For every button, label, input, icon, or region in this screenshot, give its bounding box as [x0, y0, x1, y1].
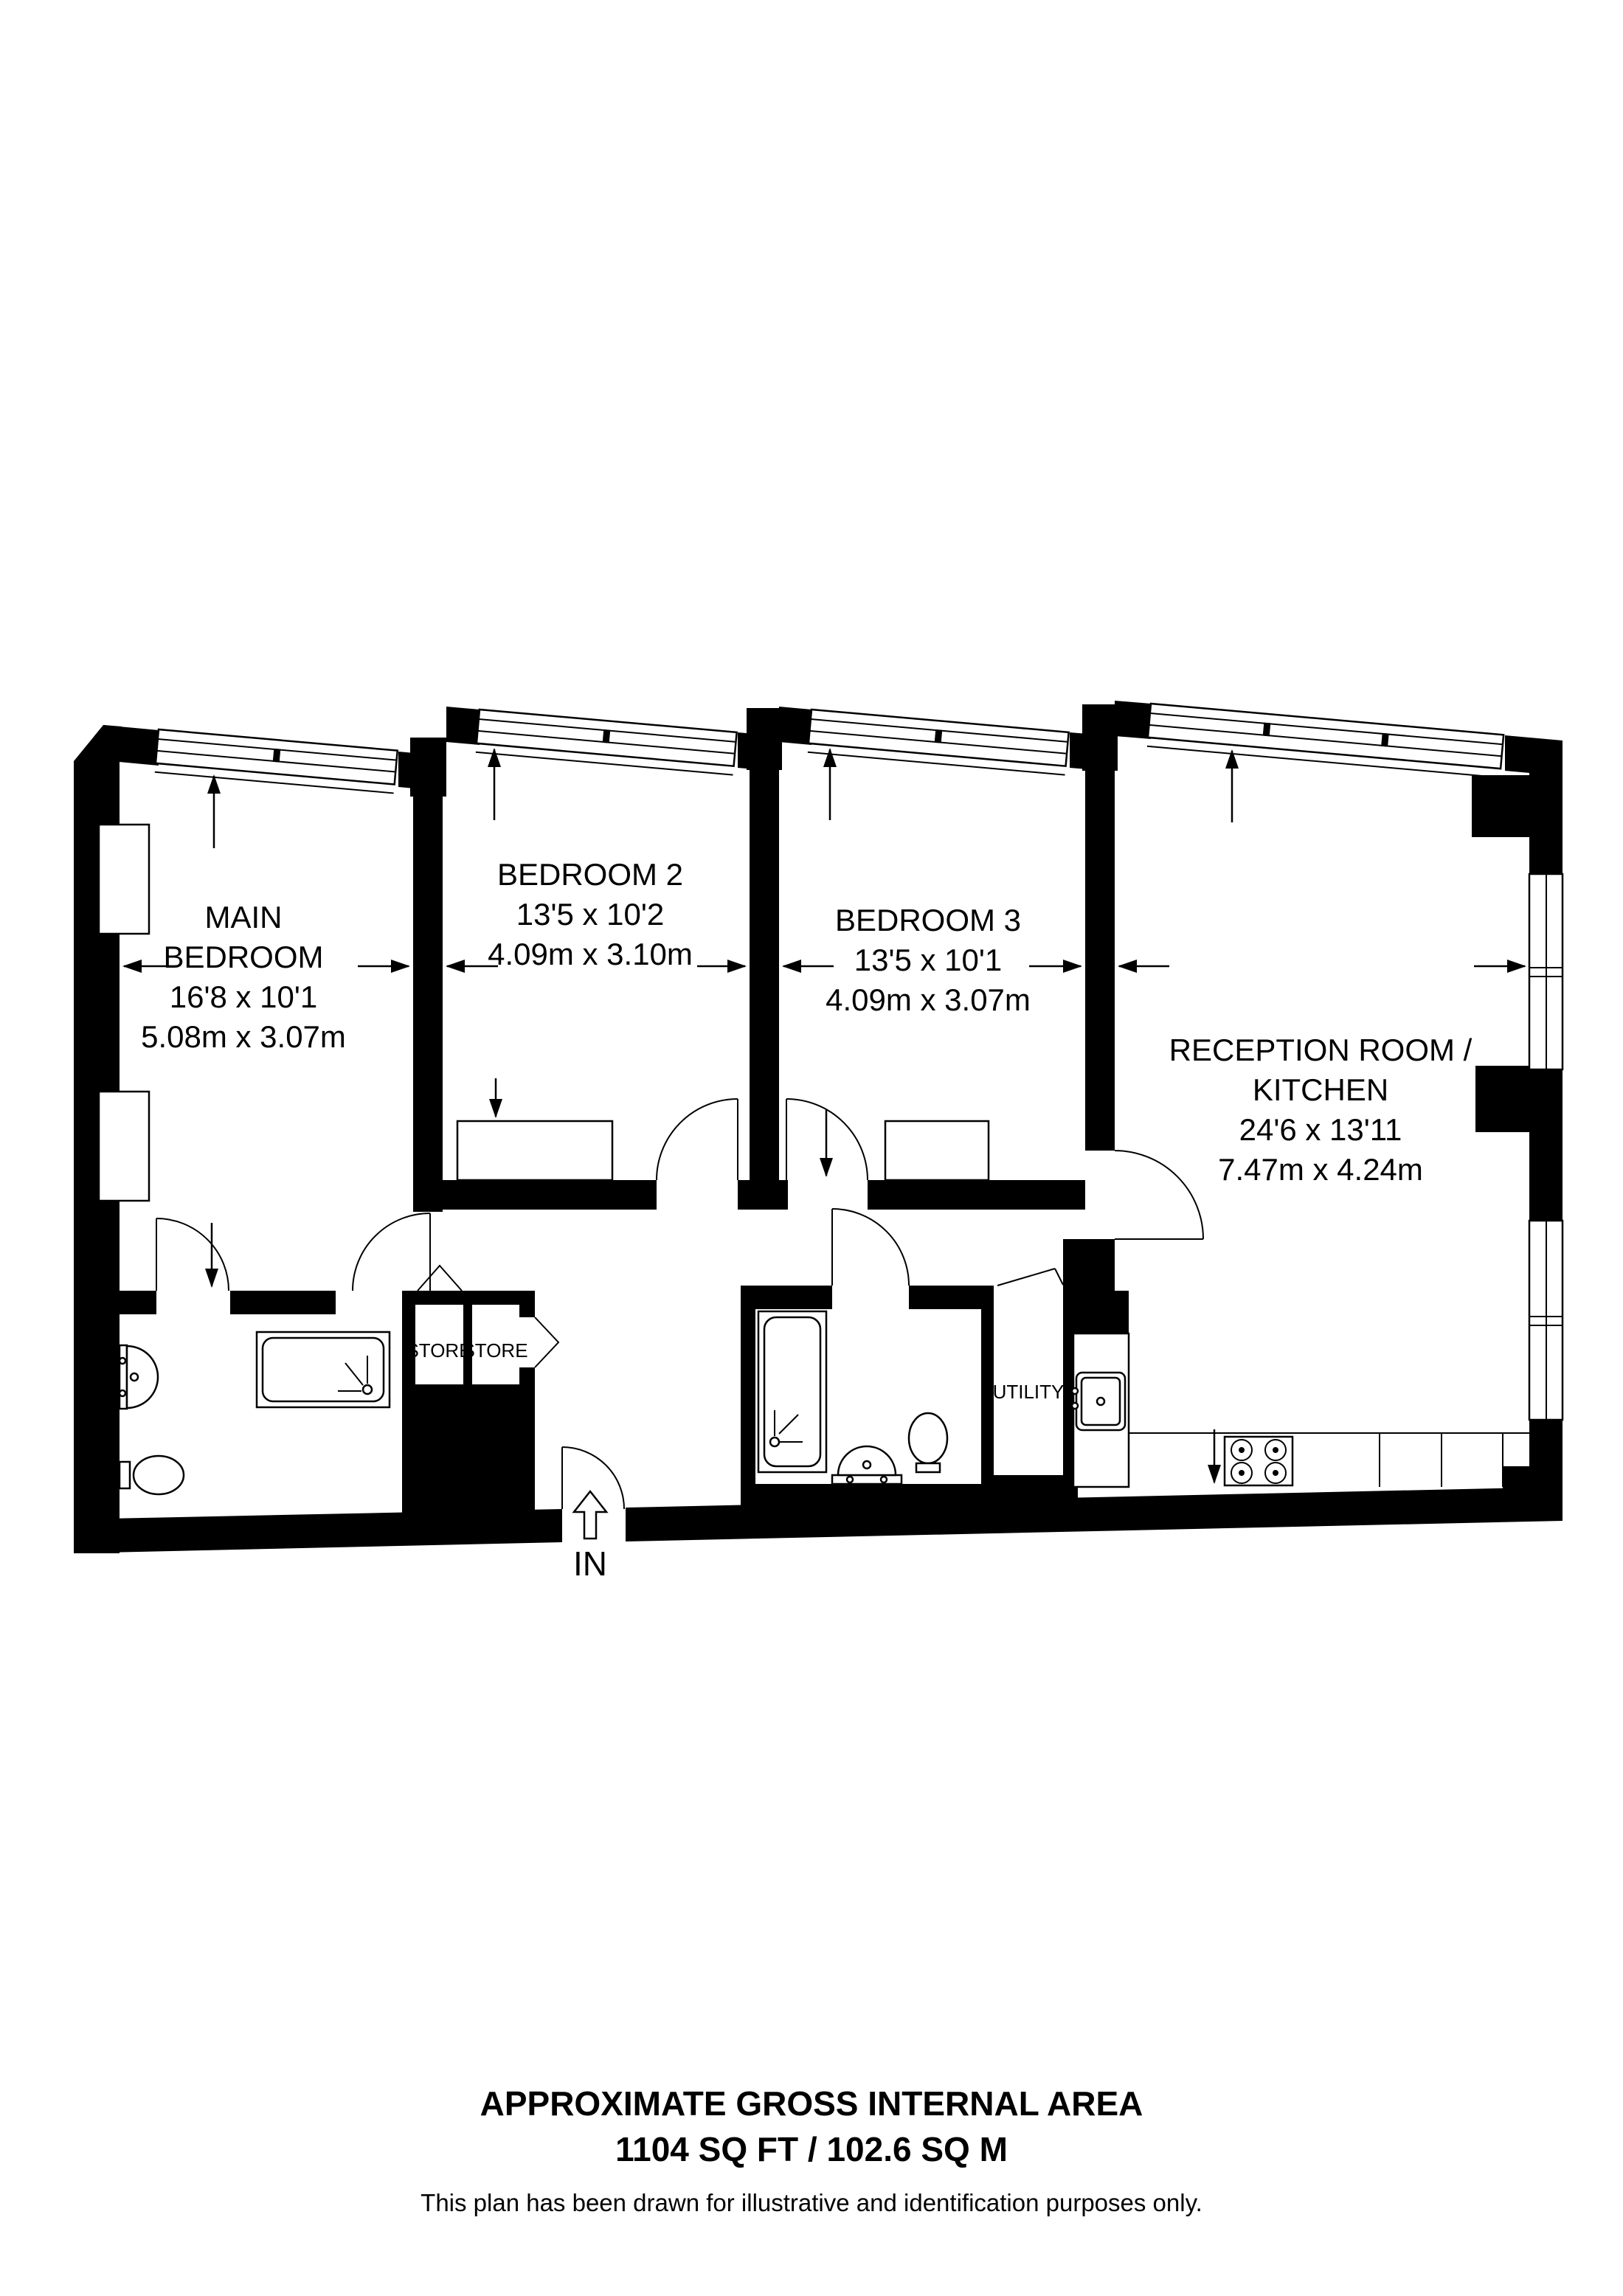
- store2-label: STORE: [462, 1339, 527, 1362]
- page-background: [0, 0, 1623, 2296]
- room-bedroom3-label: BEDROOM 3 13'5 x 10'1 4.09m x 3.07m: [826, 903, 1031, 1017]
- in-label: IN: [573, 1544, 607, 1583]
- left-wall-recess-2: [99, 1092, 149, 1201]
- toilet-icon: [120, 1456, 184, 1494]
- bedroom3-metric-dims: 4.09m x 3.07m: [826, 982, 1031, 1017]
- footer-area-title: APPROXIMATE GROSS INTERNAL AREA: [480, 2084, 1143, 2123]
- bedroom2-metric-dims: 4.09m x 3.10m: [488, 937, 693, 971]
- bath-icon: [257, 1332, 390, 1407]
- bedroom2-wardrobe-niche: [457, 1121, 612, 1180]
- bedroom2-name: BEDROOM 2: [497, 857, 683, 892]
- bedroom3-wardrobe-niche: [885, 1121, 989, 1180]
- main-bedroom-imperial-dims: 16'8 x 10'1: [170, 979, 318, 1014]
- footer-disclaimer: This plan has been drawn for illustrativ…: [421, 2189, 1202, 2216]
- bedroom2-imperial-dims: 13'5 x 10'2: [516, 897, 665, 932]
- reception-imperial-dims: 24'6 x 13'11: [1239, 1112, 1402, 1147]
- kitchen-sink-icon: [1072, 1373, 1125, 1430]
- reception-name-line1: RECEPTION ROOM /: [1169, 1033, 1473, 1067]
- room-bedroom2-label: BEDROOM 2 13'5 x 10'2 4.09m x 3.10m: [488, 857, 693, 971]
- left-wall-recess-1: [99, 825, 149, 934]
- bath-icon: [758, 1311, 826, 1472]
- reception-name-line2: KITCHEN: [1253, 1072, 1388, 1107]
- bedroom3-imperial-dims: 13'5 x 10'1: [854, 943, 1003, 977]
- bedroom3-name: BEDROOM 3: [835, 903, 1021, 937]
- reception-metric-dims: 7.47m x 4.24m: [1218, 1152, 1423, 1187]
- floor-plan-svg: MAIN BEDROOM 16'8 x 10'1 5.08m x 3.07m B…: [0, 0, 1623, 2296]
- main-bedroom-metric-dims: 5.08m x 3.07m: [141, 1019, 346, 1054]
- main-bedroom-name-line2: BEDROOM: [163, 940, 323, 974]
- footer-area-value: 1104 SQ FT / 102.6 SQ M: [615, 2130, 1008, 2168]
- hob-icon: [1225, 1437, 1292, 1485]
- main-bedroom-name-line1: MAIN: [205, 900, 283, 934]
- window-icon: [1529, 1221, 1563, 1420]
- floorplan-page: MAIN BEDROOM 16'8 x 10'1 5.08m x 3.07m B…: [0, 0, 1623, 2296]
- window-icon: [1529, 874, 1563, 1069]
- utility-label: UTILITY: [993, 1381, 1065, 1403]
